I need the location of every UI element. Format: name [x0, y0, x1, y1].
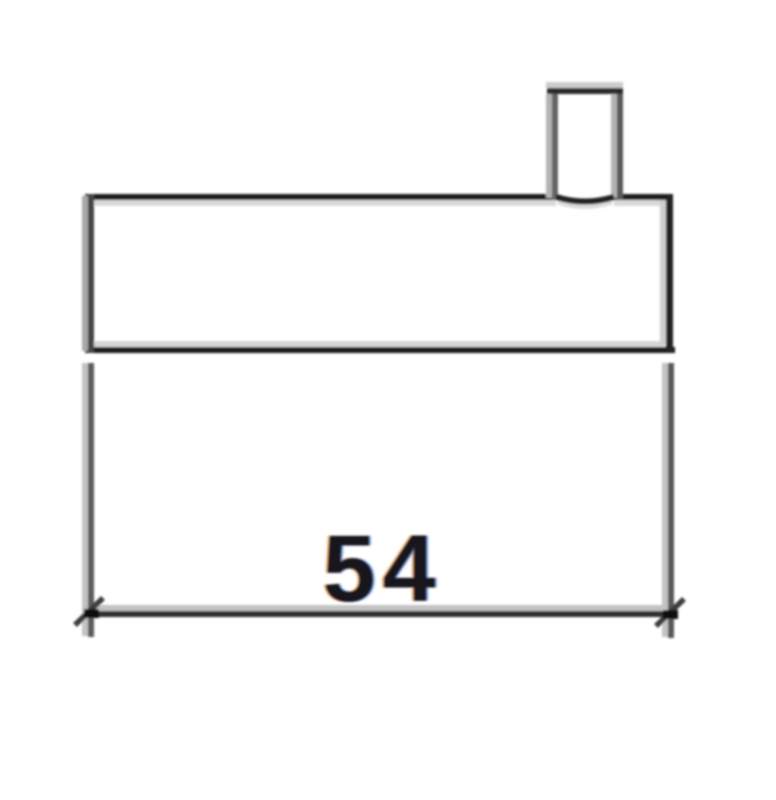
svg-text:4: 4 — [383, 516, 436, 622]
svg-text:5: 5 — [323, 516, 376, 622]
